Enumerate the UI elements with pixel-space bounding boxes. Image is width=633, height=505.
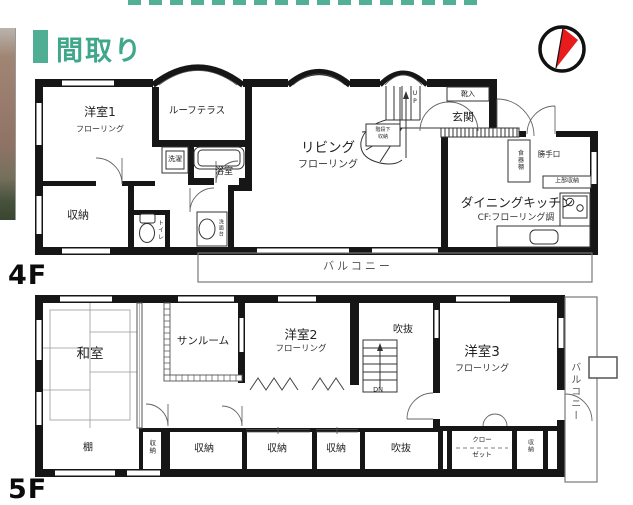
room-label-void-lower: 吹抜 <box>391 443 411 455</box>
label-balcony-4f: バルコニー <box>323 261 393 274</box>
label-cupboard: 食器棚 <box>516 150 523 171</box>
floor-label-4f: 4F <box>8 260 47 291</box>
label-laundry: 洗濯 <box>168 155 182 163</box>
label-shelf: 棚 <box>83 442 93 454</box>
room-label-dining-kitchen: ダイニングキッチン <box>461 196 574 210</box>
floor-label-5f: 5F <box>8 474 47 505</box>
label-storage-e: 収納 <box>526 439 533 453</box>
floorplan-page: 間取り <box>0 0 633 505</box>
label-upper-storage: 上部収納 <box>555 179 579 186</box>
floorplan-drawing <box>0 0 633 505</box>
room-label-storage-4f: 収納 <box>67 210 89 223</box>
label-toilet: トイレ <box>156 220 163 241</box>
room-label-sunroom: サンルーム <box>177 335 229 347</box>
label-closet-line2: ゼット <box>472 451 492 458</box>
room-label-japanese-room: 和室 <box>77 347 104 363</box>
label-balcony-5f: バルコニー <box>568 362 580 422</box>
label-storage-b: 収納 <box>194 443 214 455</box>
label-stairs-down: DN <box>373 386 383 393</box>
label-storage-d: 収納 <box>326 443 346 455</box>
room-label-bath: 浴室 <box>215 167 233 177</box>
room-sublabel-western-room3-floor: フローリング <box>455 364 509 374</box>
room-sublabel-dining-kitchen-floor: CF:フローリング調 <box>478 213 555 223</box>
label-washstand: 洗面台 <box>217 219 223 237</box>
label-stairs-up: UP <box>411 90 418 106</box>
room-sublabel-living-floor: フローリング <box>298 159 358 171</box>
label-back-door: 勝手口 <box>538 151 561 160</box>
room-sublabel-western-room1-floor: フローリング <box>76 124 124 133</box>
label-under-stairs-storage-line1: 階段下 <box>375 128 390 134</box>
room-sublabel-western-room2-floor: フローリング <box>275 345 326 355</box>
room-label-western-room2: 洋室2 <box>285 328 318 342</box>
room-label-roof-terrace: ルーフテラス <box>169 107 225 118</box>
label-closet-line1: クロー <box>472 436 492 443</box>
label-storage-a: 収納 <box>147 440 154 455</box>
label-storage-c: 収納 <box>267 443 287 455</box>
room-label-living: リビング <box>301 141 355 157</box>
room-label-western-room1: 洋室1 <box>84 106 116 120</box>
label-under-stairs-storage-line2: 収納 <box>378 135 388 141</box>
room-label-western-room3: 洋室3 <box>464 345 500 361</box>
room-label-entrance: 玄関 <box>452 112 474 125</box>
label-shoe-cabinet: 靴入 <box>461 90 475 98</box>
room-label-void-upper: 吹抜 <box>393 324 413 336</box>
